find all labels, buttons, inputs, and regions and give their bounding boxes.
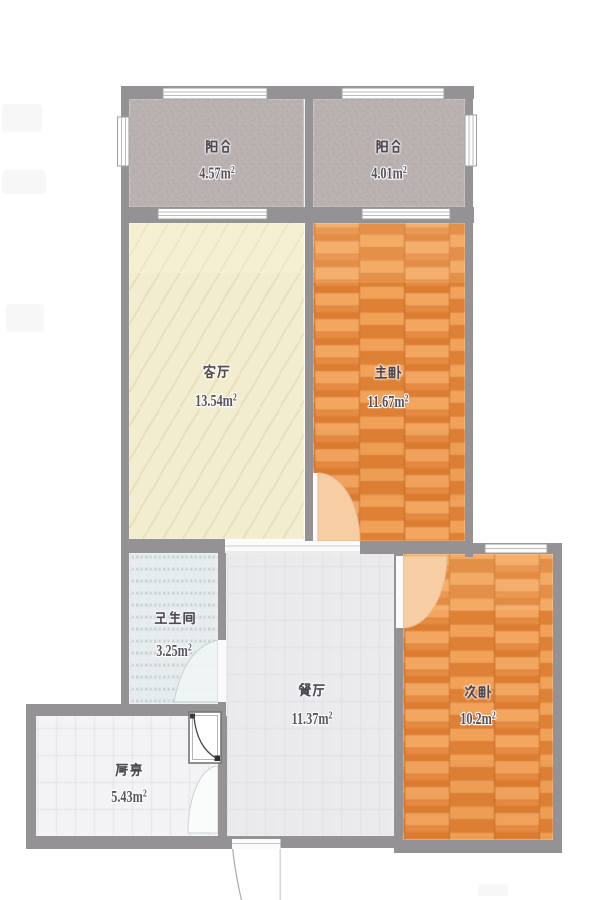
svg-text:10.2m2: 10.2m2 xyxy=(460,709,496,728)
svg-text:13.54m2: 13.54m2 xyxy=(195,391,237,410)
svg-text:11.37m2: 11.37m2 xyxy=(292,709,333,728)
svg-text:11.67m2: 11.67m2 xyxy=(368,392,409,411)
svg-text:4.57m2: 4.57m2 xyxy=(199,164,235,183)
svg-text:3.25m2: 3.25m2 xyxy=(156,641,192,660)
svg-text:5.43m2: 5.43m2 xyxy=(111,787,147,806)
svg-text:4.01m2: 4.01m2 xyxy=(371,164,407,183)
